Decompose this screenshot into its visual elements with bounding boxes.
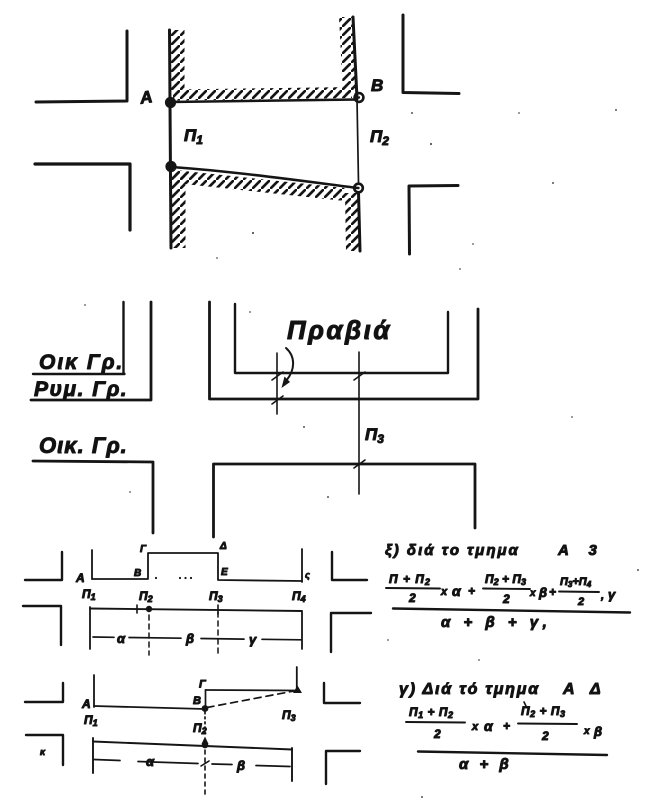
svg-text:E: E xyxy=(221,567,228,578)
svg-text:β: β xyxy=(236,758,245,773)
svg-text:Πραβιά: Πραβιά xyxy=(287,315,392,345)
svg-text:γ) Διά τό τμημα: γ) Διά τό τμημα xyxy=(399,681,540,698)
svg-text:2: 2 xyxy=(502,592,510,606)
svg-text:γ: γ xyxy=(608,587,616,602)
svg-text:ς: ς xyxy=(305,570,310,580)
svg-text:γ: γ xyxy=(249,632,257,647)
svg-text:Οικ. Γρ.: Οικ. Γρ. xyxy=(39,433,128,458)
svg-text:,: , xyxy=(600,590,604,602)
svg-text:B: B xyxy=(134,568,141,579)
svg-text:Π2: Π2 xyxy=(370,127,389,148)
svg-text:Οικ Γρ.: Οικ Γρ. xyxy=(39,351,124,374)
svg-text:Π4: Π4 xyxy=(292,589,306,604)
svg-text:x: x xyxy=(583,726,590,737)
svg-text:β: β xyxy=(538,585,547,600)
svg-text:Ρυμ. Γρ.: Ρυμ. Γρ. xyxy=(34,378,128,401)
svg-text:2: 2 xyxy=(541,729,549,743)
svg-text:Α 3: Α 3 xyxy=(557,542,605,559)
svg-text:2: 2 xyxy=(577,596,584,608)
svg-text:x: x xyxy=(471,721,479,733)
svg-text:Γ: Γ xyxy=(140,544,147,555)
svg-text:α + β: α + β xyxy=(459,756,512,773)
svg-text:Γ: Γ xyxy=(199,679,207,691)
svg-text:κ: κ xyxy=(40,747,46,757)
svg-text:+: + xyxy=(468,584,475,598)
svg-text:β: β xyxy=(185,631,194,646)
svg-text:B: B xyxy=(193,695,201,707)
svg-text:β: β xyxy=(593,724,602,739)
svg-text:Π1 + Π2: Π1 + Π2 xyxy=(409,705,453,720)
svg-text:ξ) διά το τμημα: ξ) διά το τμημα xyxy=(385,542,520,559)
svg-text:Π1: Π1 xyxy=(82,587,96,602)
svg-text:Π3: Π3 xyxy=(282,708,296,723)
svg-text:Π2 + Π3: Π2 + Π3 xyxy=(485,572,526,587)
svg-text:A: A xyxy=(81,697,91,711)
svg-text:α + β + γ,: α + β + γ, xyxy=(441,614,551,631)
svg-text:Π + Π2: Π + Π2 xyxy=(389,572,431,587)
svg-text:+: + xyxy=(503,719,510,733)
svg-text:A: A xyxy=(138,87,154,108)
svg-text:α: α xyxy=(117,631,126,646)
svg-text:Π1: Π1 xyxy=(184,126,203,147)
svg-text:2: 2 xyxy=(433,727,441,741)
svg-text:Π3: Π3 xyxy=(209,589,223,604)
svg-text:x: x xyxy=(440,586,448,598)
svg-text:Α Δ: Α Δ xyxy=(562,681,607,698)
svg-text:α: α xyxy=(452,583,462,599)
svg-text:Π2: Π2 xyxy=(139,589,153,604)
svg-text:Π3: Π3 xyxy=(365,425,384,446)
svg-text:α: α xyxy=(146,754,155,769)
svg-text:α: α xyxy=(484,718,494,734)
svg-text:+: + xyxy=(549,585,556,599)
svg-text:A: A xyxy=(75,571,85,585)
svg-text:Π2 + Π3: Π2 + Π3 xyxy=(521,704,565,719)
svg-text:Π3+Π4: Π3+Π4 xyxy=(560,576,592,589)
svg-text:B: B xyxy=(371,76,383,95)
svg-text:Π1: Π1 xyxy=(84,713,98,728)
svg-text:x: x xyxy=(529,588,536,599)
svg-text:2: 2 xyxy=(408,591,416,605)
svg-text:Δ: Δ xyxy=(219,541,227,552)
